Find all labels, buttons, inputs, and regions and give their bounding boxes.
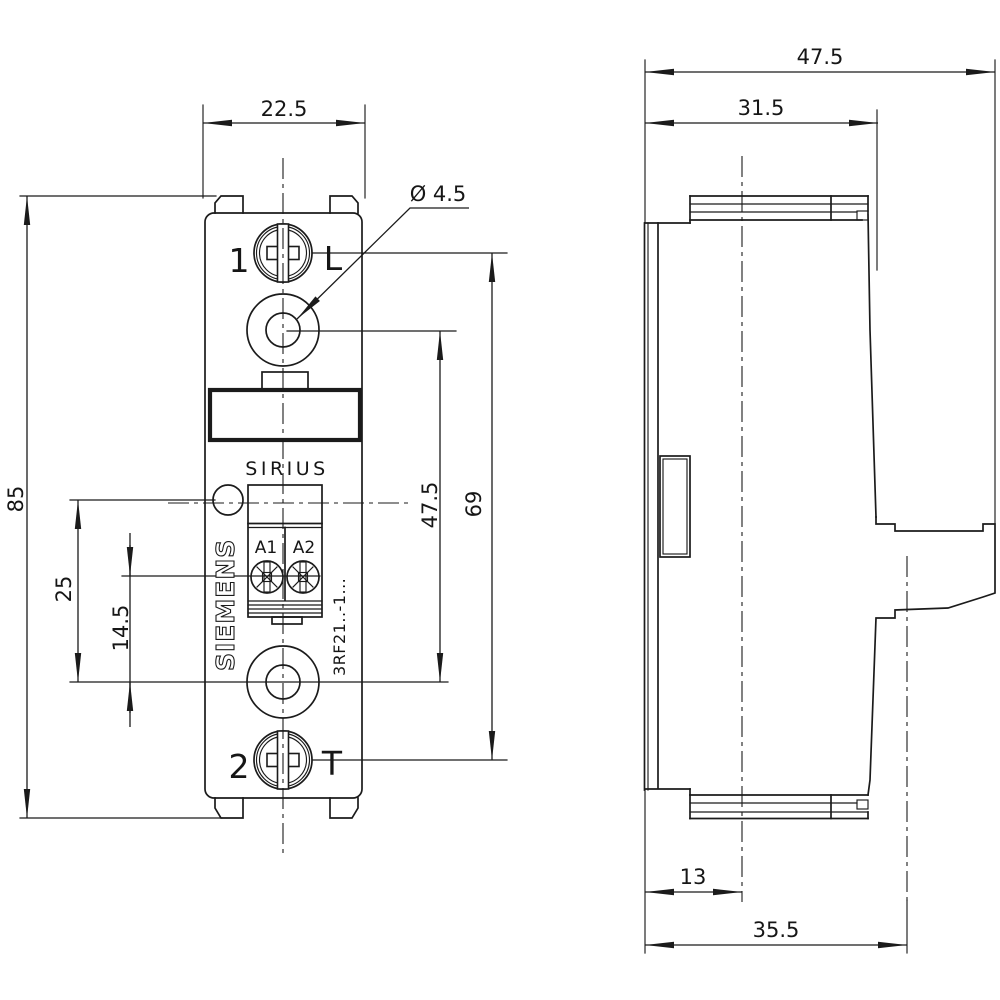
mounting-tab-top-left: [215, 196, 243, 213]
status-led: [213, 485, 243, 515]
screw-2-number-label: 2: [229, 747, 250, 786]
terminal-foot: [272, 617, 302, 624]
terminal-a2-label: A2: [293, 538, 315, 558]
dim-side-depth-body-label: 31.5: [738, 96, 785, 120]
screw-1-number-label: 1: [229, 241, 250, 280]
dim-front-terminal-offset-label: 14.5: [109, 605, 133, 652]
dimension-drawing-canvas: 22.5 85 25 14.5 47.5 69 Ø 4.5: [0, 0, 1000, 1000]
dim-front-width-label: 22.5: [261, 97, 308, 121]
top-rail-section: [645, 196, 868, 223]
hole-boss: [262, 372, 308, 389]
terminal-screw-a2: [287, 561, 319, 593]
heatsink-block: [210, 390, 360, 440]
control-terminal-block: A1 A2: [248, 485, 322, 624]
side-view: [645, 196, 996, 819]
terminal-protrusion-profile: [868, 517, 995, 795]
label-window: [660, 456, 690, 557]
terminal-screw-a1: [251, 561, 283, 593]
dim-side-depth-base-label: 35.5: [753, 918, 800, 942]
mounting-tab-top-right: [330, 196, 358, 213]
dim-hole-diameter-label: Ø 4.5: [410, 182, 467, 206]
bottom-rail-section: [690, 795, 868, 819]
label-window-inner: [663, 459, 687, 554]
dim-front-led-offset-label: 25: [52, 576, 76, 603]
mounting-tab-bottom-left: [215, 798, 243, 818]
dim-front-height-label: 85: [4, 486, 28, 513]
body-right-edge: [868, 214, 876, 517]
dim-side-depth-total-label: 47.5: [797, 45, 844, 69]
dim-front-screw-spacing-label: 69: [462, 491, 486, 518]
leader-line-hole-diameter: [297, 208, 469, 319]
dim-side-rail-center-label: 13: [680, 865, 707, 889]
series-label: SIRIUS: [245, 458, 328, 480]
terminal-a1-label: A1: [255, 538, 277, 558]
brand-label: SIEMENS: [211, 539, 240, 671]
dim-front-hole-spacing-label: 47.5: [418, 482, 442, 529]
model-label: 3RF21..-1...: [330, 578, 349, 676]
drawing-page: 22.5 85 25 14.5 47.5 69 Ø 4.5: [0, 0, 1000, 1000]
mounting-plate: [645, 223, 691, 795]
side-view-dimensions: 47.5 31.5 13 35.5: [645, 45, 995, 953]
screw-2-letter-label: T: [321, 744, 343, 783]
screw-1-letter-label: L: [324, 239, 343, 278]
mounting-tab-bottom-right: [330, 798, 358, 818]
